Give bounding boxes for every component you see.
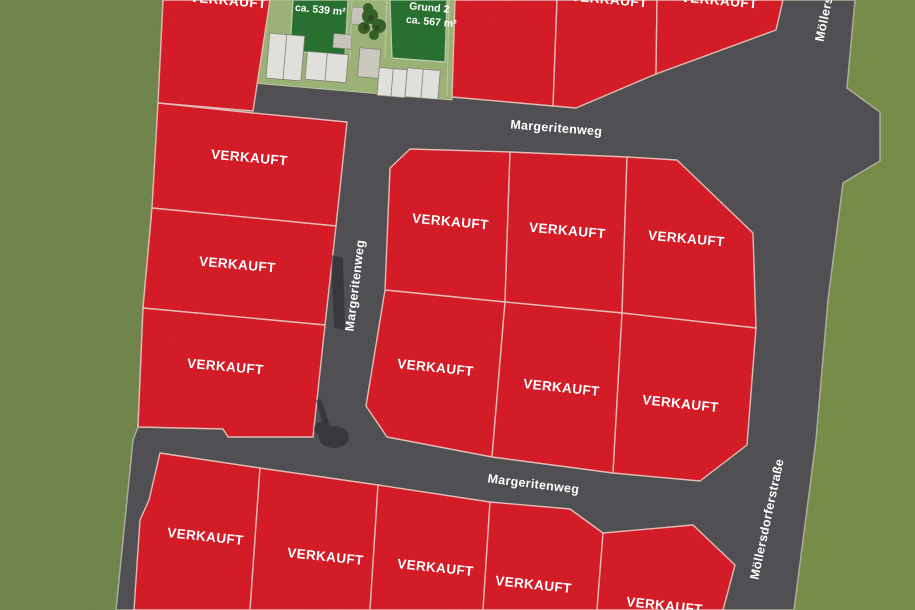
site-plan-map: VERKAUFT VERKAUFT VERKAUFT VERKAUFT VERK… xyxy=(0,0,915,610)
texture-overlay xyxy=(0,0,915,610)
